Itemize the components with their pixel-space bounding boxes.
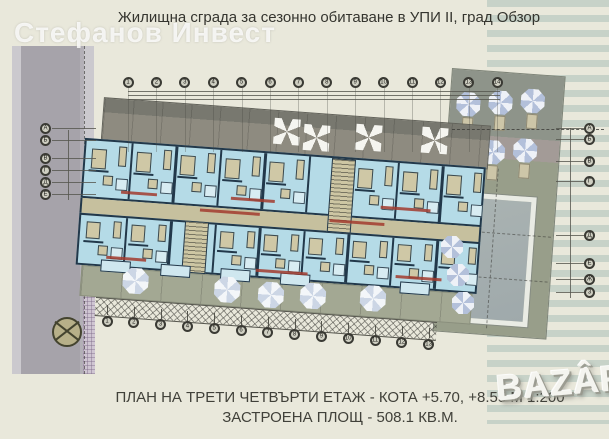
furniture-bed: [130, 225, 145, 243]
furniture-bed: [401, 171, 417, 192]
north-compass-icon: [52, 317, 82, 347]
furniture-table: [275, 258, 286, 269]
dimension-line: [128, 91, 500, 92]
axis-extension-line: [412, 88, 413, 152]
furniture-table: [319, 261, 330, 272]
axis-marker: А: [584, 123, 595, 134]
bathroom: [376, 267, 389, 280]
axis-extension-line: [128, 88, 129, 152]
apartment-wall: [433, 241, 439, 289]
furniture-wardrobe: [246, 231, 255, 249]
dimension-line: [52, 182, 96, 183]
furniture-table: [191, 182, 202, 193]
partition-wall: [444, 195, 464, 198]
stefanov-invest-watermark: Стефанов Инвест: [14, 17, 276, 49]
beach-umbrella-icon: [488, 90, 514, 116]
apartment-wall: [167, 221, 173, 269]
furniture-wardrobe: [162, 150, 171, 171]
axis-marker: Г: [584, 176, 595, 187]
furniture-table: [102, 175, 113, 186]
axis-marker: З: [584, 287, 595, 298]
axis-extension-line: [469, 88, 470, 152]
furniture-bed: [396, 244, 411, 262]
axis-extension-line: [187, 311, 188, 321]
axis-extension-line: [241, 315, 242, 325]
beach-umbrella-icon: [520, 88, 546, 114]
furniture-bed: [263, 234, 278, 252]
bathroom: [243, 257, 256, 270]
partition-wall: [128, 243, 148, 246]
axis-marker: 12: [396, 337, 407, 348]
axis-marker: 11: [407, 77, 418, 88]
furniture-wardrobe: [473, 173, 482, 194]
dimension-line: [52, 170, 96, 171]
axis-marker: 10: [343, 333, 354, 344]
partition-wall: [355, 189, 375, 192]
furniture-bed: [219, 231, 234, 249]
furniture-table: [97, 245, 108, 256]
axis-marker: Б: [584, 134, 595, 145]
axis-extension-line: [270, 88, 271, 152]
furniture-table: [369, 195, 380, 206]
beach-umbrella-icon: [512, 138, 538, 164]
furniture-wardrobe: [335, 238, 344, 256]
axis-marker: 12: [435, 77, 446, 88]
furniture-bed: [357, 168, 373, 189]
axis-extension-line: [242, 88, 243, 152]
axis-extension-line: [161, 309, 162, 319]
partition-wall: [266, 182, 286, 185]
axis-marker: В: [584, 156, 595, 167]
sun-lounger: [526, 114, 538, 130]
furniture-wardrobe: [423, 244, 432, 262]
axis-marker: 5: [209, 323, 220, 334]
axis-marker: 8: [321, 77, 332, 88]
axis-marker: Д: [40, 177, 51, 188]
apartment-wall: [388, 238, 394, 286]
parasol-icon: [355, 124, 383, 152]
axis-extension-line: [295, 319, 296, 329]
furniture-table: [364, 265, 375, 276]
axis-extension-line: [355, 88, 356, 152]
furniture-bed: [86, 221, 101, 239]
bathroom: [204, 185, 217, 198]
dimension-line: [52, 158, 96, 159]
furniture-table: [142, 248, 153, 259]
balcony: [100, 259, 131, 273]
apartment-wall: [305, 156, 312, 212]
axis-extension-line: [107, 305, 108, 315]
furniture-table: [231, 255, 242, 266]
axis-marker: Б: [40, 135, 51, 146]
axis-marker: Г: [40, 165, 51, 176]
axis-extension-line: [268, 317, 269, 327]
bathroom: [426, 201, 439, 214]
bathroom: [160, 182, 173, 195]
furniture-table: [147, 179, 158, 190]
plot-boundary-dashed-line: [452, 129, 604, 130]
dimension-line: [128, 99, 500, 100]
axis-marker: 8: [289, 329, 300, 340]
furniture-bed: [135, 152, 151, 173]
axis-marker: 10: [378, 77, 389, 88]
bathroom: [332, 263, 345, 276]
axis-marker: 1: [123, 77, 134, 88]
axis-extension-line: [440, 88, 441, 152]
axis-marker: 3: [155, 319, 166, 330]
axis-extension-line: [429, 328, 430, 338]
axis-marker: Е: [40, 189, 51, 200]
axis-marker: В: [40, 153, 51, 164]
axis-marker: 14: [492, 77, 503, 88]
partition-wall: [216, 250, 236, 253]
balcony: [160, 264, 191, 278]
dimension-line: [570, 128, 571, 298]
furniture-bed: [179, 155, 195, 176]
furniture-wardrobe: [290, 234, 299, 252]
furniture-wardrobe: [295, 159, 304, 180]
dimension-line: [128, 95, 500, 96]
partition-wall: [305, 256, 325, 259]
furniture-bed: [352, 241, 367, 259]
dimension-line: [68, 130, 69, 200]
site-plan-canvas: 1234567891011121314 12345678910111213 АБ…: [0, 0, 609, 439]
furniture-wardrobe: [251, 156, 260, 177]
axis-marker: 6: [265, 77, 276, 88]
apartment-wall: [216, 150, 223, 206]
furniture-wardrobe: [384, 166, 393, 187]
parasol-icon: [421, 127, 449, 155]
dimension-line: [52, 140, 96, 141]
axis-marker: Е: [584, 258, 595, 269]
axis-marker: 3: [179, 77, 190, 88]
bathroom: [293, 191, 306, 204]
axis-extension-line: [384, 88, 385, 152]
axis-marker: А: [40, 123, 51, 134]
dimension-line: [52, 194, 96, 195]
axis-extension-line: [156, 88, 157, 152]
parasol-icon: [273, 118, 301, 146]
axis-extension-line: [375, 325, 376, 335]
axis-extension-line: [298, 88, 299, 152]
partition-wall: [177, 176, 197, 179]
axis-extension-line: [348, 323, 349, 333]
axis-extension-line: [185, 88, 186, 152]
axis-marker: 2: [151, 77, 162, 88]
axis-marker: 7: [293, 77, 304, 88]
axis-marker: 6: [236, 325, 247, 336]
partition-wall: [222, 179, 242, 182]
axis-extension-line: [321, 321, 322, 331]
furniture-wardrobe: [157, 224, 166, 242]
axis-marker: 5: [236, 77, 247, 88]
bathroom: [470, 204, 483, 217]
furniture-table: [458, 201, 469, 212]
balcony: [399, 281, 430, 295]
axis-marker: 11: [370, 335, 381, 346]
furniture-wardrobe: [207, 153, 216, 174]
axis-extension-line: [327, 88, 328, 152]
furniture-wardrobe: [379, 241, 388, 259]
furniture-bed: [307, 238, 322, 256]
bathroom: [154, 250, 167, 263]
axis-marker: 9: [350, 77, 361, 88]
furniture-wardrobe: [468, 247, 477, 265]
bathroom: [115, 178, 128, 191]
apartment-wall: [438, 166, 445, 222]
axis-extension-line: [213, 88, 214, 152]
furniture-table: [280, 188, 291, 199]
axis-marker: 4: [182, 321, 193, 332]
axis-extension-line: [402, 326, 403, 336]
apartment-wall: [211, 225, 217, 273]
building-plan: [73, 96, 488, 323]
furniture-wardrobe: [118, 146, 127, 167]
axis-marker: 1: [102, 316, 113, 327]
axis-extension-line: [214, 313, 215, 323]
partition-wall: [133, 173, 153, 176]
axis-marker: 4: [208, 77, 219, 88]
apartment-wall: [171, 147, 178, 203]
furniture-bed: [446, 175, 462, 196]
furniture-bed: [268, 161, 284, 182]
axis-marker: Ж: [584, 274, 595, 285]
furniture-wardrobe: [113, 221, 122, 239]
dimension-line: [52, 128, 96, 129]
furniture-wardrobe: [429, 169, 438, 190]
axis-marker: Д: [584, 230, 595, 241]
partition-wall: [350, 260, 370, 263]
axis-marker: 2: [128, 317, 139, 328]
axis-extension-line: [134, 307, 135, 317]
furniture-bed: [224, 158, 240, 179]
furniture-table: [236, 185, 247, 196]
apartment-wall: [393, 163, 400, 219]
partition-wall: [394, 263, 414, 266]
partition-wall: [261, 253, 281, 256]
caption-line-2: ЗАСТРОЕНА ПЛОЩ - 508.1 КВ.М.: [100, 408, 580, 428]
apartment-wall: [344, 234, 350, 282]
axis-marker: 13: [423, 339, 434, 350]
partition-wall: [83, 240, 103, 243]
sun-lounger: [518, 163, 530, 179]
partition-wall: [399, 192, 419, 195]
axis-marker: 9: [316, 331, 327, 342]
axis-extension-line: [497, 88, 498, 152]
axis-marker: 7: [262, 327, 273, 338]
